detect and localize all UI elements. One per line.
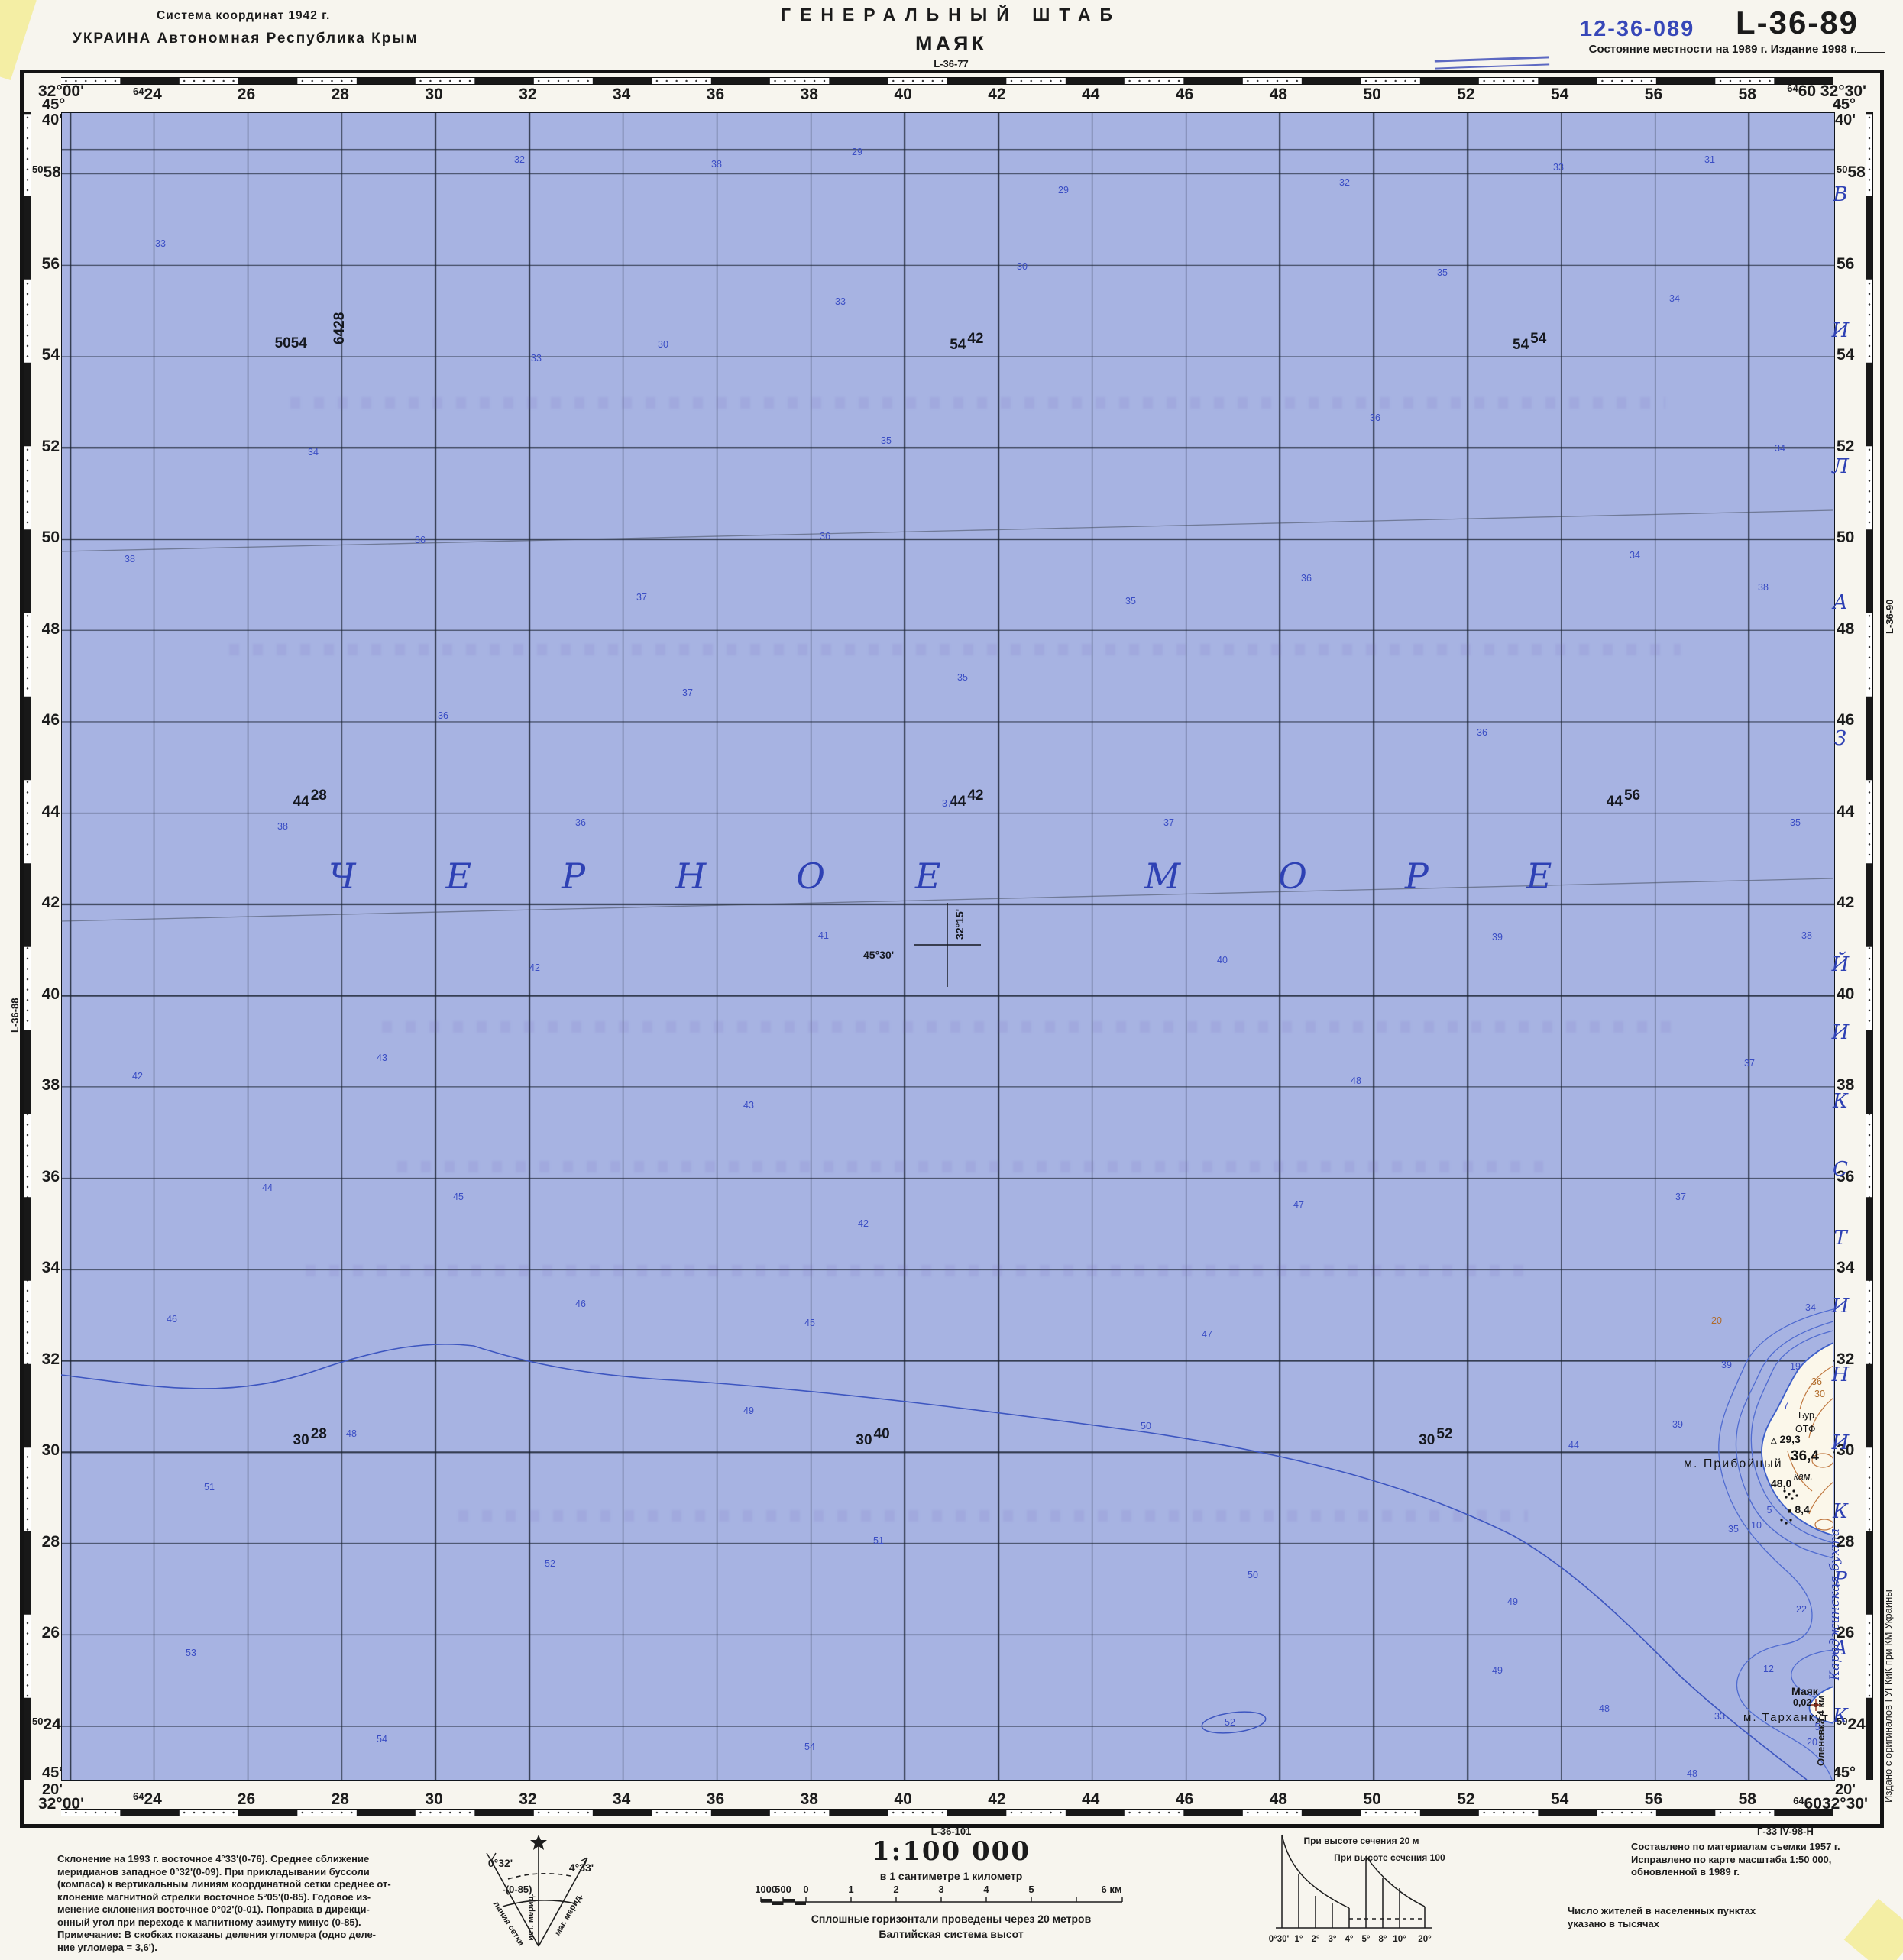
fill-line — [1857, 52, 1885, 53]
gulf-name-letter: И — [1830, 1431, 1850, 1454]
depth-sounding: 47 — [1202, 1329, 1212, 1340]
scale-bar-label: 0 — [803, 1884, 808, 1895]
depth-sounding: 32 — [514, 154, 525, 165]
depth-sounding: 34 — [1669, 293, 1680, 304]
grid-northing-left: 5024 — [32, 1716, 60, 1734]
bleedthrough-band — [397, 1161, 1543, 1172]
scale-bar-label: 2 — [893, 1884, 898, 1895]
grid-easting-bottom: 56 — [1645, 1790, 1662, 1809]
depth-sounding: 34 — [308, 447, 319, 458]
adjacent-sheet-left: L-36-88 — [9, 998, 21, 1033]
grid-easting-top: 56 — [1645, 86, 1662, 104]
spot-height: 48,0 — [1771, 1477, 1791, 1489]
cape-priboyny-label: м. Прибойный — [1684, 1457, 1783, 1471]
depth-sounding: 36 — [575, 817, 586, 828]
corner-lon-bottomright: 646032°30' — [1793, 1795, 1868, 1813]
depth-sounding: 46 — [167, 1314, 177, 1324]
depth-sounding: 33 — [1553, 162, 1564, 173]
grid-northing-left: 46 — [32, 711, 60, 729]
scale-bar-label: 3 — [938, 1884, 943, 1895]
center-lon-label: 32°15' — [953, 909, 966, 940]
grid-northing-right: 40 — [1837, 985, 1854, 1004]
corner-lon-bottomleft: 32°00' — [38, 1795, 84, 1813]
depth-sounding: 34 — [1630, 550, 1640, 561]
scale-bar-label: 500 — [775, 1884, 791, 1895]
grid-easting-bottom: 54 — [1551, 1790, 1568, 1809]
bleedthrough-band — [306, 1265, 1528, 1276]
depth-sounding: 36 — [1477, 727, 1487, 738]
shore-sounding: 5 — [1815, 1722, 1820, 1732]
shore-sounding: 20 — [1807, 1737, 1817, 1748]
gulf-name-letter: В — [1830, 183, 1850, 206]
scale-bar-label: м 1000 — [752, 1884, 777, 1895]
depth-sounding: 51 — [204, 1482, 215, 1493]
grid-easting-top: 46 — [1176, 86, 1193, 104]
grid-easting-bottom: 46 — [1176, 1790, 1193, 1809]
depth-sounding: 37 — [1744, 1058, 1755, 1069]
gulf-name-letter: К — [1830, 1705, 1850, 1728]
depth-sounding: 29 — [1058, 185, 1069, 196]
grid-northing-right: 44 — [1837, 803, 1854, 821]
grid-point-label: 3028 — [293, 1432, 327, 1449]
decl-right-angle: 4°33' — [569, 1861, 594, 1874]
decl-mils: -(0-85) — [502, 1884, 532, 1895]
depth-sounding: 35 — [1728, 1524, 1739, 1535]
depth-sounding: 47 — [1293, 1199, 1304, 1210]
minute-band-top — [61, 77, 1833, 85]
depth-sounding: 43 — [743, 1100, 754, 1111]
grid-easting-top: 6424 — [133, 86, 162, 104]
shore-sounding: 10 — [1751, 1520, 1762, 1531]
gulf-name-letter: А — [1830, 1637, 1850, 1660]
slope-angle-label: 0°30' — [1269, 1935, 1290, 1944]
grid-easting-bottom: 26 — [238, 1790, 255, 1809]
depth-sounding: 30 — [658, 339, 668, 350]
contour-interval-note: Сплошные горизонтали проведены через 20 … — [811, 1913, 1091, 1925]
grid-point-label: 5454 — [1513, 337, 1546, 354]
height-datum-note: Балтийская система высот — [879, 1928, 1023, 1940]
grid-northing-right: 52 — [1837, 438, 1854, 456]
grid-northing-right: 28 — [1837, 1533, 1854, 1551]
slope-angle-label: 10° — [1393, 1935, 1406, 1944]
depth-sounding: 40 — [1217, 955, 1228, 965]
series-note: Г-33 IV-98-Н — [1757, 1826, 1814, 1837]
grid-northing-left: 36 — [32, 1168, 60, 1186]
declination-text-block: Склонение на 1993 г. восточное 4°33'(0-7… — [57, 1853, 455, 1954]
bleedthrough-band — [290, 397, 1665, 409]
grid-northing-left: 34 — [32, 1259, 60, 1277]
grid-easting-bottom: 48 — [1270, 1790, 1287, 1809]
sea-name-word2: МОРЕ — [1144, 855, 1649, 897]
grid-easting-bottom: 42 — [988, 1790, 1005, 1809]
grid-northing-left: 56 — [32, 255, 60, 273]
shore-sounding: 12 — [1763, 1664, 1774, 1674]
depth-sounding: 37 — [942, 798, 953, 809]
nomenclature-ua: 12-36-089 — [1580, 17, 1694, 42]
shore-sounding: 30 — [1814, 1389, 1825, 1399]
bleedthrough-band — [382, 1021, 1681, 1033]
credits-block: Составлено по материалам съемки 1957 г.И… — [1631, 1841, 1840, 1879]
grid-easting-top: 26 — [238, 86, 255, 104]
grid-northing-right: 42 — [1837, 894, 1854, 912]
slope-angle-label: 5° — [1362, 1935, 1371, 1944]
gulf-name-letter: Й — [1830, 953, 1850, 976]
depth-sounding: 37 — [682, 687, 693, 698]
depth-sounding: 43 — [377, 1053, 387, 1063]
depth-sounding: 39 — [1672, 1419, 1683, 1430]
grid-northing-right: 50 — [1837, 529, 1854, 547]
grid-northing-right: 56 — [1837, 255, 1854, 273]
scan-mark-bottomright — [1844, 1899, 1903, 1960]
population-note: Число жителей в населенных пунктахуказан… — [1568, 1905, 1756, 1930]
decl-ray-right-label: маг. мерид. — [553, 1892, 584, 1937]
scale-bar-label: 1 — [848, 1884, 853, 1895]
grid-easting-top: 28 — [332, 86, 349, 104]
depth-sounding: 30 — [1017, 261, 1028, 272]
depth-sounding: 33 — [155, 238, 166, 249]
shore-sounding: 36 — [1811, 1376, 1822, 1387]
slope-angle-label: 4° — [1345, 1935, 1354, 1944]
minute-band-bottom — [61, 1809, 1833, 1816]
depth-sounding: 38 — [1801, 930, 1812, 941]
depth-sounding: 34 — [1805, 1302, 1816, 1313]
shore-sounding: 20 — [1711, 1315, 1722, 1326]
grid-point-label: 5442 — [950, 337, 983, 354]
publisher-note: Издано с оригиналов ГУГКиК при КМ Украин… — [1882, 1590, 1894, 1803]
grid-easting-bottom: 52 — [1457, 1790, 1474, 1809]
gulf-name-letter: З — [1830, 727, 1850, 750]
state-note: Состояние местности на 1989 г. Издание 1… — [1589, 43, 1857, 56]
depth-sounding: 42 — [132, 1071, 143, 1082]
slope-angle-label: 8° — [1379, 1935, 1387, 1944]
depth-sounding: 38 — [277, 821, 288, 832]
depth-sounding: 44 — [1568, 1440, 1579, 1451]
grid-easting-top: 38 — [801, 86, 818, 104]
depth-sounding: 50 — [1141, 1421, 1151, 1431]
gulf-name-letter: С — [1830, 1158, 1850, 1181]
grid-northing-left: 54 — [32, 346, 60, 364]
bleedthrough-band — [229, 644, 1681, 655]
region-title: УКРАИНА Автономная Республика Крым — [73, 31, 419, 47]
depth-sounding: 35 — [1125, 596, 1136, 606]
depth-sounding: 42 — [529, 962, 540, 973]
grid-point-label: 3052 — [1419, 1432, 1452, 1449]
depth-sounding: 29 — [852, 147, 862, 157]
grid-northing-left: 28 — [32, 1533, 60, 1551]
grid-point-label: 4442 — [950, 794, 983, 810]
grid-easting-top: 54 — [1551, 86, 1568, 104]
slope-angle-label: 1° — [1295, 1935, 1303, 1944]
spot-height: ■ 8,4 — [1788, 1503, 1810, 1515]
depth-sounding: 37 — [1675, 1192, 1686, 1202]
grid-northing-left: 5058 — [32, 163, 60, 182]
depth-sounding: 39 — [1721, 1360, 1732, 1370]
spot-height: Бур. — [1798, 1410, 1817, 1421]
depth-sounding: 42 — [858, 1218, 869, 1229]
shore-sounding: 22 — [1796, 1604, 1807, 1615]
grid-northing-left: 26 — [32, 1624, 60, 1642]
scale-bar-label: 4 — [983, 1884, 989, 1895]
depth-sounding: 41 — [818, 930, 829, 941]
bleedthrough-band — [458, 1510, 1528, 1522]
grid-easting-bottom: 32 — [519, 1790, 536, 1809]
grid-easting-bottom: 28 — [332, 1790, 349, 1809]
gulf-name-letter: Р — [1830, 1568, 1850, 1591]
center-lat-label: 45°30' — [863, 949, 894, 961]
grid-point-label: 4456 — [1607, 794, 1640, 810]
grid-point-label: 4428 — [293, 794, 327, 810]
grid-full-northing-label: 5054 — [275, 335, 307, 352]
slope-angle-label: 20° — [1418, 1935, 1432, 1944]
gulf-name-letter: И — [1830, 1295, 1850, 1318]
scale-bar-label: 6 км — [1102, 1884, 1122, 1895]
depth-sounding: 50 — [1248, 1570, 1258, 1580]
scale-ratio: 1:100 000 — [872, 1836, 1031, 1867]
grid-easting-top: 32 — [519, 86, 536, 104]
gulf-name-letter: Л — [1830, 455, 1850, 478]
grid-full-easting-label: 6428 — [332, 312, 348, 344]
scan-mark-topleft — [0, 0, 37, 80]
declination-diagram: 0°32' 4°33' -(0-85) линия сетки ист. мер… — [424, 1832, 661, 1955]
spot-height: △ 29,3 — [1771, 1433, 1801, 1445]
depth-sounding: 39 — [1492, 932, 1503, 943]
gulf-name-letter: Н — [1830, 1363, 1850, 1386]
spot-height: кам. — [1794, 1471, 1813, 1482]
gulf-name-letter: И — [1830, 319, 1850, 342]
decl-ray-left-label: линия сетки — [491, 1900, 526, 1948]
grid-easting-bottom: 50 — [1363, 1790, 1380, 1809]
depth-sounding: 54 — [804, 1742, 815, 1752]
depth-sounding: 48 — [1599, 1703, 1610, 1714]
grid-easting-bottom: 6424 — [133, 1790, 162, 1809]
depth-sounding: 45 — [804, 1318, 815, 1328]
map-field-sea — [61, 112, 1835, 1781]
grid-northing-left: 42 — [32, 894, 60, 912]
corner-lat-bottomright-deg: 45° — [1833, 1764, 1856, 1782]
grid-easting-bottom: 40 — [894, 1790, 911, 1809]
minute-band-left — [24, 112, 31, 1780]
decl-left-angle: 0°32' — [488, 1857, 513, 1869]
grid-northing-left: 32 — [32, 1350, 60, 1369]
depth-sounding: 35 — [881, 435, 892, 446]
grid-northing-left: 38 — [32, 1076, 60, 1095]
grid-easting-top: 30 — [425, 86, 442, 104]
depth-sounding: 34 — [1775, 443, 1785, 454]
depth-sounding: 36 — [438, 710, 448, 721]
grid-easting-top: 42 — [988, 86, 1005, 104]
minute-band-right — [1866, 112, 1873, 1780]
depth-sounding: 35 — [957, 672, 968, 683]
lighthouse-height: 0,02 — [1793, 1697, 1811, 1708]
grid-easting-bottom: 38 — [801, 1790, 818, 1809]
slope-diagram: 0°30'1°2°3°4°5°8°10°20° При высоте сечен… — [1268, 1827, 1448, 1949]
scale-bar: м 10005000123456 км — [752, 1884, 1150, 1910]
depth-sounding: 49 — [1492, 1665, 1503, 1676]
depth-sounding: 35 — [1790, 817, 1801, 828]
map-sheet: Система координат 1942 г. УКРАИНА Автоно… — [0, 0, 1903, 1960]
depth-sounding: 33 — [531, 353, 542, 364]
gulf-name-letter: К — [1830, 1090, 1850, 1113]
grid-easting-top: 52 — [1457, 86, 1474, 104]
depth-sounding: 36 — [415, 535, 426, 545]
grid-easting-bottom: 34 — [613, 1790, 630, 1809]
decl-ray-center-label: ист. мерид. — [526, 1894, 536, 1940]
general-staff-title: ГЕНЕРАЛЬНЫЙ ШТАБ — [781, 5, 1121, 25]
adjacent-sheet-top: L-36-77 — [934, 58, 969, 70]
grid-northing-right: 54 — [1837, 346, 1854, 364]
adjacent-sheet-right: L-36-90 — [1884, 599, 1895, 634]
depth-sounding: 38 — [711, 159, 722, 170]
grid-easting-bottom: 36 — [707, 1790, 724, 1809]
blue-scan-mark — [1435, 56, 1549, 69]
shore-sounding: 19 — [1790, 1361, 1801, 1372]
grid-easting-top: 44 — [1082, 86, 1099, 104]
depth-sounding: 46 — [575, 1299, 586, 1309]
depth-sounding: 52 — [545, 1558, 555, 1569]
depth-sounding: 36 — [1301, 573, 1312, 584]
slope-title-100m: При высоте сечения 100 м — [1334, 1852, 1448, 1863]
grid-easting-top: 58 — [1739, 86, 1756, 104]
grid-northing-right: 5058 — [1837, 163, 1866, 182]
grid-easting-top: 36 — [707, 86, 724, 104]
depth-sounding: 44 — [262, 1182, 273, 1193]
gulf-name-letter: И — [1830, 1021, 1850, 1044]
depth-sounding: 51 — [873, 1535, 884, 1546]
depth-sounding: 48 — [1687, 1768, 1697, 1779]
grid-easting-bottom: 58 — [1739, 1790, 1756, 1809]
spot-height: 36,4 — [1791, 1448, 1819, 1465]
scale-note: в 1 сантиметре 1 километр — [880, 1870, 1023, 1882]
depth-sounding: 31 — [1704, 154, 1715, 165]
corner-lat-topleft-min: 40' — [42, 112, 63, 129]
lighthouse-label: Маяк — [1791, 1685, 1818, 1697]
adjacent-sheet-bottom: L-36-101 — [931, 1826, 972, 1837]
corner-lat-topright-min: 40' — [1835, 112, 1856, 129]
depth-sounding: 35 — [1437, 267, 1448, 278]
grid-easting-top: 34 — [613, 86, 630, 104]
depth-sounding: 48 — [1351, 1075, 1361, 1086]
sheet-name: МАЯК — [915, 32, 987, 56]
depth-sounding: 36 — [820, 531, 830, 542]
depth-sounding: 49 — [1507, 1596, 1518, 1607]
coord-system-note: Система координат 1942 г. — [157, 9, 330, 23]
nomenclature: L-36-89 — [1736, 5, 1859, 41]
grid-northing-right: 48 — [1837, 620, 1854, 639]
gulf-name-letter: К — [1830, 1500, 1850, 1523]
grid-northing-left: 50 — [32, 529, 60, 547]
grid-northing-left: 48 — [32, 620, 60, 639]
grid-easting-bottom: 44 — [1082, 1790, 1099, 1809]
shore-sounding: 33 — [1714, 1711, 1725, 1722]
depth-sounding: 36 — [1370, 412, 1380, 423]
sea-name-word1: ЧЕРНОЕ — [328, 855, 1031, 897]
gulf-name-letter: Т — [1830, 1227, 1850, 1250]
depth-sounding: 38 — [1758, 582, 1769, 593]
shore-sounding: 7 — [1784, 1400, 1789, 1411]
depth-sounding: 37 — [1163, 817, 1174, 828]
grid-northing-left: 44 — [32, 803, 60, 821]
slope-title-20m: При высоте сечения 20 м — [1303, 1835, 1419, 1846]
depth-sounding: 53 — [186, 1648, 196, 1658]
depth-sounding: 52 — [1225, 1717, 1235, 1728]
grid-northing-left: 30 — [32, 1441, 60, 1460]
gulf-name-letter: А — [1830, 591, 1850, 614]
grid-northing-left: 40 — [32, 985, 60, 1004]
depth-sounding: 54 — [377, 1734, 387, 1745]
depth-sounding: 33 — [835, 296, 846, 307]
grid-northing-left: 52 — [32, 438, 60, 456]
depth-sounding: 48 — [346, 1428, 357, 1439]
grid-northing-right: 34 — [1837, 1259, 1854, 1277]
scale-bar-label: 5 — [1028, 1884, 1034, 1895]
grid-easting-top: 50 — [1363, 86, 1380, 104]
depth-sounding: 38 — [125, 554, 135, 564]
depth-sounding: 32 — [1339, 177, 1350, 188]
depth-sounding: 49 — [743, 1405, 754, 1416]
shore-sounding: 5 — [1767, 1505, 1772, 1515]
grid-easting-top: 48 — [1270, 86, 1287, 104]
slope-angle-label: 3° — [1329, 1935, 1337, 1944]
grid-easting-top: 40 — [894, 86, 911, 104]
depth-sounding: 45 — [453, 1192, 464, 1202]
grid-point-label: 3040 — [856, 1432, 889, 1449]
depth-sounding: 37 — [636, 592, 647, 603]
grid-easting-bottom: 30 — [425, 1790, 442, 1809]
slope-angle-label: 2° — [1312, 1935, 1320, 1944]
